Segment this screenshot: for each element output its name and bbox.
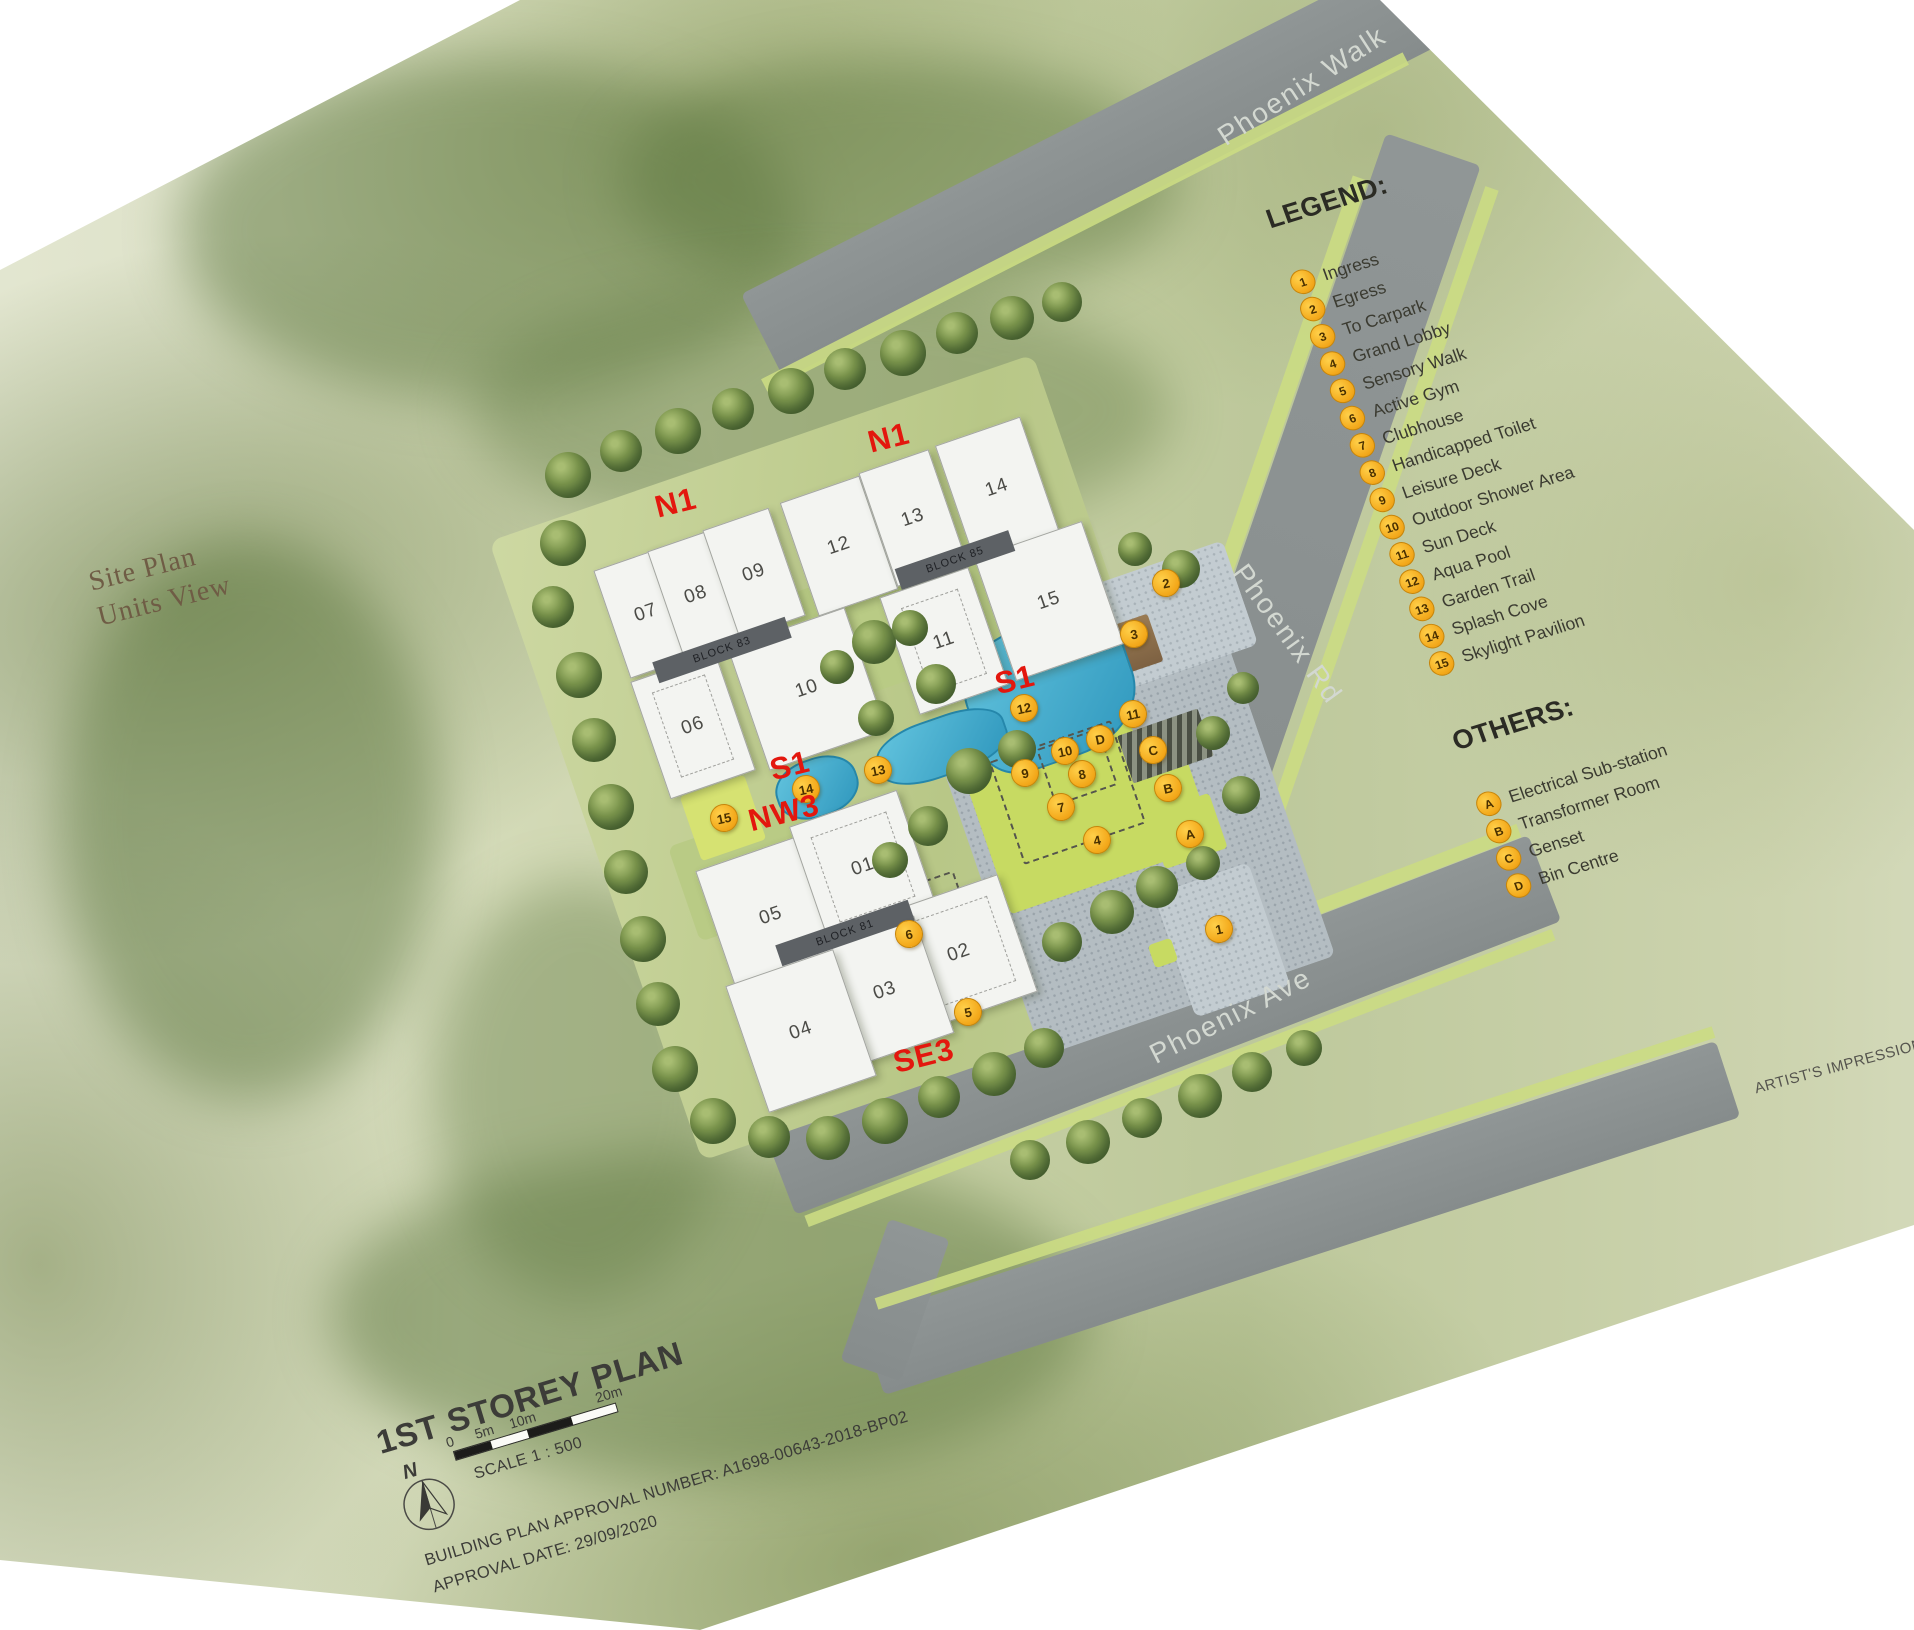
- tree: [1066, 1120, 1110, 1164]
- tree: [652, 1046, 698, 1092]
- unit-number: 14: [982, 474, 1011, 502]
- tree: [972, 1052, 1016, 1096]
- tree: [604, 850, 648, 894]
- unit-number: 12: [824, 532, 853, 560]
- tree: [620, 916, 666, 962]
- unit-number: 05: [756, 902, 785, 930]
- tree: [1186, 846, 1220, 880]
- tree: [918, 1076, 960, 1118]
- tree: [936, 312, 978, 354]
- tree: [1222, 776, 1260, 814]
- tree: [892, 610, 928, 646]
- tree: [872, 842, 908, 878]
- tree: [916, 664, 956, 704]
- tree: [852, 620, 896, 664]
- unit-number: 07: [631, 599, 660, 627]
- unit-number: 10: [792, 675, 821, 703]
- tree: [1042, 282, 1082, 322]
- tree: [636, 982, 680, 1026]
- tree: [572, 718, 616, 762]
- tree: [1286, 1030, 1322, 1066]
- tree: [712, 388, 754, 430]
- unit-number: 15: [1034, 587, 1063, 615]
- unit-number: 09: [739, 559, 768, 587]
- unit-number: 04: [786, 1017, 815, 1045]
- tree: [1196, 716, 1230, 750]
- tree: [1232, 1052, 1272, 1092]
- scale-tick-0: 0: [444, 1433, 456, 1451]
- tree: [532, 586, 574, 628]
- tree: [1178, 1074, 1222, 1118]
- tree: [768, 368, 814, 414]
- tree: [1227, 672, 1259, 704]
- tree: [1010, 1140, 1050, 1180]
- tree: [880, 330, 926, 376]
- tree: [1090, 890, 1134, 934]
- tree: [545, 452, 591, 498]
- tree: [862, 1098, 908, 1144]
- tree: [655, 408, 701, 454]
- tree: [806, 1116, 850, 1160]
- tree: [1122, 1098, 1162, 1138]
- tree: [990, 296, 1034, 340]
- site-plan-page: 07 08 09 12 13 14 06 10 11 15 05 01 02 0…: [0, 0, 1914, 1630]
- tree: [588, 784, 634, 830]
- tree: [540, 520, 586, 566]
- tree: [600, 430, 642, 472]
- tree: [1042, 922, 1082, 962]
- unit-number: 08: [681, 581, 710, 609]
- tree: [908, 806, 948, 846]
- unit-number: 03: [870, 977, 899, 1005]
- tree: [1136, 866, 1178, 908]
- tree: [858, 700, 894, 736]
- tree: [748, 1116, 790, 1158]
- tree: [690, 1098, 736, 1144]
- tree: [824, 348, 866, 390]
- unit-number: 13: [898, 504, 927, 532]
- tree: [1118, 532, 1152, 566]
- tree: [820, 650, 854, 684]
- tree: [556, 652, 602, 698]
- tree: [946, 748, 992, 794]
- tree: [1024, 1028, 1064, 1068]
